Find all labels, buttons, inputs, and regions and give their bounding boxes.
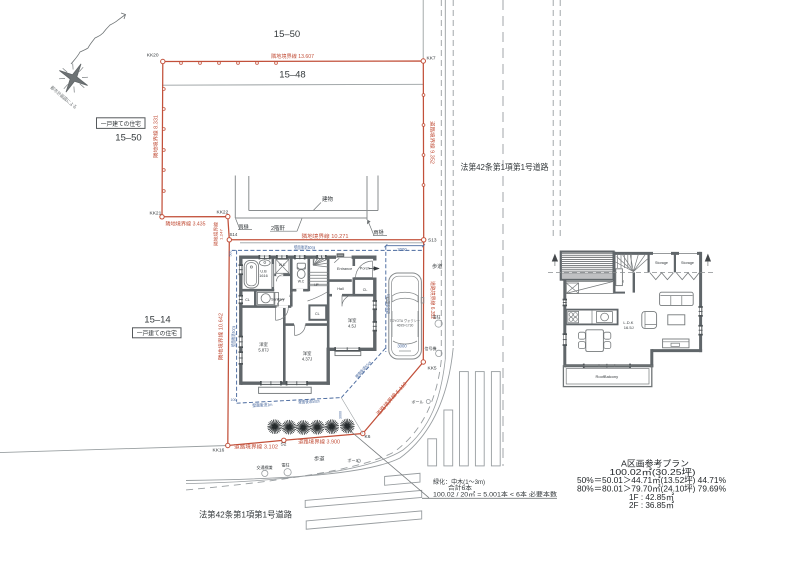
svg-text:法第42条第1項第1号道路: 法第42条第1項第1号道路 xyxy=(461,162,550,172)
svg-text:KK7: KK7 xyxy=(427,56,436,62)
svg-text:UP: UP xyxy=(314,283,318,287)
svg-text:500: 500 xyxy=(229,251,233,257)
svg-text:15–14: 15–14 xyxy=(144,315,170,326)
svg-text:歩道: 歩道 xyxy=(314,455,324,463)
svg-text:交通標識: 交通標識 xyxy=(257,464,273,470)
svg-text:4.37J: 4.37J xyxy=(302,356,312,361)
svg-text:W.C: W.C xyxy=(279,263,286,267)
svg-text:S14: S14 xyxy=(230,232,238,237)
svg-text:Porch: Porch xyxy=(360,267,370,271)
svg-text:KK22: KK22 xyxy=(217,210,229,216)
svg-text:4695×1730: 4695×1730 xyxy=(397,323,414,327)
svg-text:15–50: 15–50 xyxy=(115,133,141,144)
svg-text:壁面後退50㎝: 壁面後退50㎝ xyxy=(230,325,237,347)
svg-text:Entrance: Entrance xyxy=(337,267,352,271)
svg-text:100: 100 xyxy=(231,398,237,402)
svg-text:K6: K6 xyxy=(365,434,371,440)
svg-text:信号機: 信号機 xyxy=(425,345,437,351)
svg-text:CL: CL xyxy=(363,288,368,292)
svg-text:CL: CL xyxy=(245,298,250,302)
svg-text:壁面後退50㎝: 壁面後退50㎝ xyxy=(294,244,316,251)
svg-text:RoofBalcony: RoofBalcony xyxy=(595,374,618,379)
svg-text:KK21: KK21 xyxy=(150,211,162,217)
svg-text:2階軒: 2階軒 xyxy=(271,224,286,232)
svg-text:15–48: 15–48 xyxy=(279,70,305,81)
svg-text:Storage: Storage xyxy=(681,261,694,265)
svg-text:ポール: ポール xyxy=(412,398,424,404)
svg-text:S13: S13 xyxy=(428,238,437,244)
svg-text:隣地境界線 8.331: 隣地境界線 8.331 xyxy=(152,115,160,158)
svg-text:隣地境界線 3.435: 隣地境界線 3.435 xyxy=(166,219,206,227)
svg-text:1616: 1616 xyxy=(259,274,267,278)
svg-text:KK20: KK20 xyxy=(147,53,159,59)
svg-text:Hall: Hall xyxy=(337,287,344,291)
svg-text:16.5J: 16.5J xyxy=(624,325,634,330)
svg-text:歩道: 歩道 xyxy=(432,262,442,270)
svg-text:隣地境界線 10.642: 隣地境界線 10.642 xyxy=(217,313,225,360)
svg-text:U.B: U.B xyxy=(260,269,267,273)
svg-text:法第42条第1項第1号道路: 法第42条第1項第1号道路 xyxy=(199,510,293,520)
svg-text:KK5: KK5 xyxy=(428,366,437,372)
svg-text:隣地境界線 13.607: 隣地境界線 13.607 xyxy=(271,52,314,60)
svg-text:1.247: 1.247 xyxy=(219,228,224,240)
svg-text:4.5J: 4.5J xyxy=(348,323,356,328)
svg-text:2F : 36.85㎡: 2F : 36.85㎡ xyxy=(629,500,675,510)
svg-text:一戸建ての住宅: 一戸建ての住宅 xyxy=(137,330,177,338)
svg-text:S2: S2 xyxy=(281,442,287,448)
svg-text:Storage: Storage xyxy=(655,261,668,265)
svg-text:Sanitary: Sanitary xyxy=(271,297,285,301)
svg-text:電柱: 電柱 xyxy=(282,461,290,467)
svg-text:TOYOTA ヴォクシー: TOYOTA ヴォクシー xyxy=(390,318,420,323)
svg-text:道路境界線 3.900: 道路境界線 3.900 xyxy=(298,438,340,446)
svg-text:2000: 2000 xyxy=(397,247,407,252)
svg-text:15–50: 15–50 xyxy=(274,29,300,40)
svg-text:5.87J: 5.87J xyxy=(258,347,268,352)
svg-text:壁面後退50㎝: 壁面後退50㎝ xyxy=(384,294,390,314)
svg-text:一戸建ての住宅: 一戸建ての住宅 xyxy=(101,120,141,128)
svg-text:道路境界線 6.352: 道路境界線 6.352 xyxy=(429,281,437,319)
svg-text:KK16: KK16 xyxy=(213,448,225,454)
svg-text:隣地境界線 10.271: 隣地境界線 10.271 xyxy=(302,232,349,240)
svg-text:建物: 建物 xyxy=(322,195,334,203)
svg-text:W.C: W.C xyxy=(298,280,305,284)
svg-text:100.02 / 20㎡ = 5.001本 < 6本 必要: 100.02 / 20㎡ = 5.001本 < 6本 必要本数 xyxy=(433,491,558,499)
svg-text:3000: 3000 xyxy=(339,411,343,419)
svg-text:道路境界線 9.352: 道路境界線 9.352 xyxy=(429,121,437,164)
svg-text:道路境界線 3.102: 道路境界線 3.102 xyxy=(234,442,278,450)
svg-text:CL: CL xyxy=(315,312,320,316)
